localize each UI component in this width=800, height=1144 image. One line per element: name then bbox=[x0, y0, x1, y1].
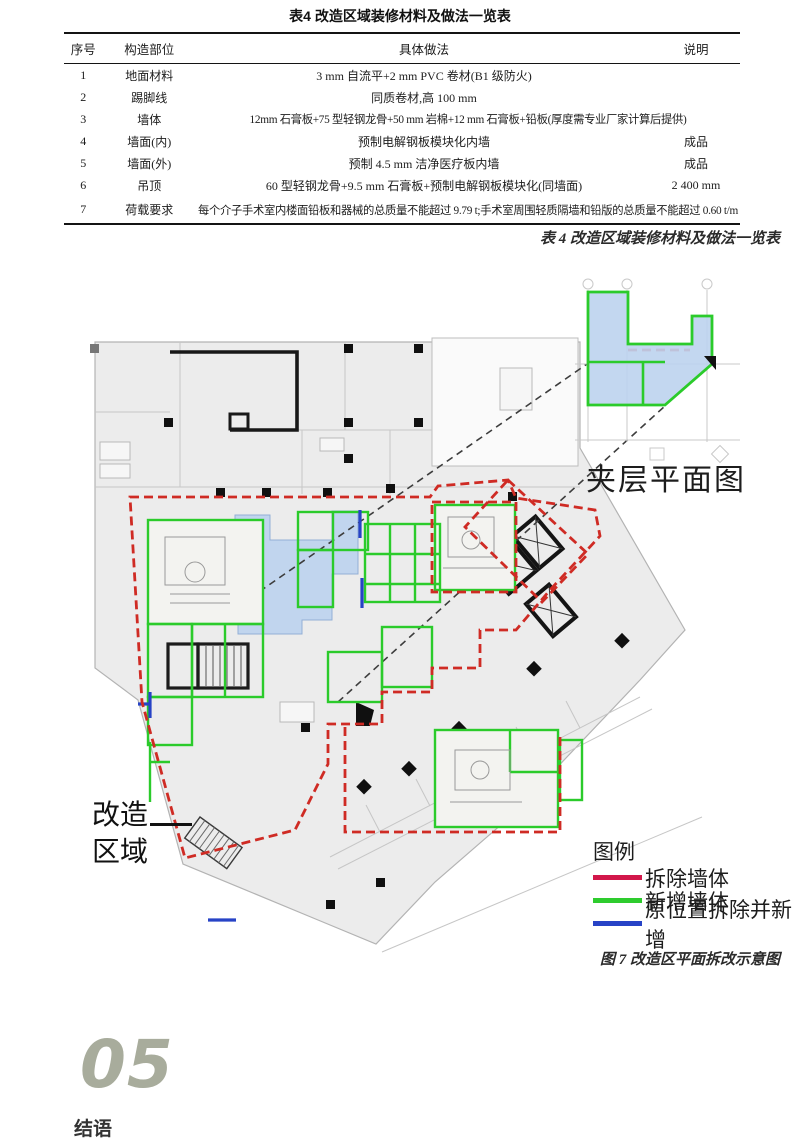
cell-part: 地面材料 bbox=[102, 64, 196, 87]
table-header-row: 序号 构造部位 具体做法 说明 bbox=[64, 33, 740, 64]
cell-no: 1 bbox=[64, 64, 102, 87]
table-row: 1 地面材料 3 mm 自流平+2 mm PVC 卷材(B1 级防火) bbox=[64, 64, 740, 87]
cell-method: 预制 4.5 mm 洁净医疗板内墙 bbox=[196, 152, 652, 174]
new-wall-swatch bbox=[593, 898, 642, 902]
cell-no: 4 bbox=[64, 130, 102, 152]
table-title: 表4 改造区域装修材料及做法一览表 bbox=[0, 6, 800, 26]
area-label-line1: 改造 bbox=[92, 797, 148, 834]
cell-no: 7 bbox=[64, 196, 102, 224]
area-pointer-line bbox=[150, 823, 192, 826]
materials-table: 序号 构造部位 具体做法 说明 1 地面材料 3 mm 自流平+2 mm PVC… bbox=[64, 32, 740, 225]
cell-no: 3 bbox=[64, 108, 102, 130]
mezzanine-plan bbox=[575, 279, 740, 462]
cell-note bbox=[652, 86, 740, 108]
cell-part: 踢脚线 bbox=[102, 86, 196, 108]
mezzanine-label: 夹层平面图 bbox=[586, 455, 746, 499]
section-number: 05 bbox=[80, 1026, 174, 1103]
cell-part: 荷载要求 bbox=[102, 196, 196, 224]
figure-caption: 图 7 改造区平面拆改示意图 bbox=[0, 948, 780, 969]
cell-note: 2 400 mm bbox=[652, 174, 740, 196]
demolish-wall-swatch bbox=[593, 875, 642, 879]
table-row: 2 踢脚线 同质卷材,高 100 mm bbox=[64, 86, 740, 108]
renovation-area-label: 改造 区域 bbox=[92, 797, 148, 871]
cell-method: 12mm 石膏板+75 型轻钢龙骨+50 mm 岩棉+12 mm 石膏板+铅板(… bbox=[196, 108, 740, 130]
col-header-method: 具体做法 bbox=[196, 33, 652, 64]
cell-part: 墙面(外) bbox=[102, 152, 196, 174]
table-row: 5 墙面(外) 预制 4.5 mm 洁净医疗板内墙 成品 bbox=[64, 152, 740, 174]
cell-method: 预制电解钢板模块化内墙 bbox=[196, 130, 652, 152]
reposition-wall-swatch bbox=[593, 921, 642, 925]
cell-part: 吊顶 bbox=[102, 174, 196, 196]
area-label-line2: 区域 bbox=[92, 834, 148, 871]
table-row: 7 荷载要求 每个介子手术室内楼面铅板和器械的总质量不能超过 9.79 t;手术… bbox=[64, 196, 740, 224]
legend-title: 图例 bbox=[593, 836, 800, 866]
table-row: 3 墙体 12mm 石膏板+75 型轻钢龙骨+50 mm 岩棉+12 mm 石膏… bbox=[64, 108, 740, 130]
col-header-note: 说明 bbox=[652, 33, 740, 64]
cell-no: 6 bbox=[64, 174, 102, 196]
cell-part: 墙面(内) bbox=[102, 130, 196, 152]
col-header-part: 构造部位 bbox=[102, 33, 196, 64]
legend: 图例 拆除墙体 新增墙体 原位置拆除并新增 bbox=[593, 836, 800, 935]
table-caption: 表 4 改造区域装修材料及做法一览表 bbox=[0, 227, 780, 248]
legend-item-label: 原位置拆除并新增 bbox=[645, 894, 800, 954]
cell-note: 成品 bbox=[652, 130, 740, 152]
cell-no: 2 bbox=[64, 86, 102, 108]
cell-note: 成品 bbox=[652, 152, 740, 174]
cell-method: 每个介子手术室内楼面铅板和器械的总质量不能超过 9.79 t;手术室周围轻质隔墙… bbox=[196, 196, 740, 224]
cell-note bbox=[652, 64, 740, 87]
cell-method: 同质卷材,高 100 mm bbox=[196, 86, 652, 108]
section-title: 结语 bbox=[74, 1114, 112, 1141]
table-row: 6 吊顶 60 型轻钢龙骨+9.5 mm 石膏板+预制电解钢板模块化(同墙面) … bbox=[64, 174, 740, 196]
cell-part: 墙体 bbox=[102, 108, 196, 130]
table-row: 4 墙面(内) 预制电解钢板模块化内墙 成品 bbox=[64, 130, 740, 152]
cell-no: 5 bbox=[64, 152, 102, 174]
cell-method: 60 型轻钢龙骨+9.5 mm 石膏板+预制电解钢板模块化(同墙面) bbox=[196, 174, 652, 196]
col-header-no: 序号 bbox=[64, 33, 102, 64]
cell-method: 3 mm 自流平+2 mm PVC 卷材(B1 级防火) bbox=[196, 64, 652, 87]
legend-item: 原位置拆除并新增 bbox=[593, 912, 800, 935]
